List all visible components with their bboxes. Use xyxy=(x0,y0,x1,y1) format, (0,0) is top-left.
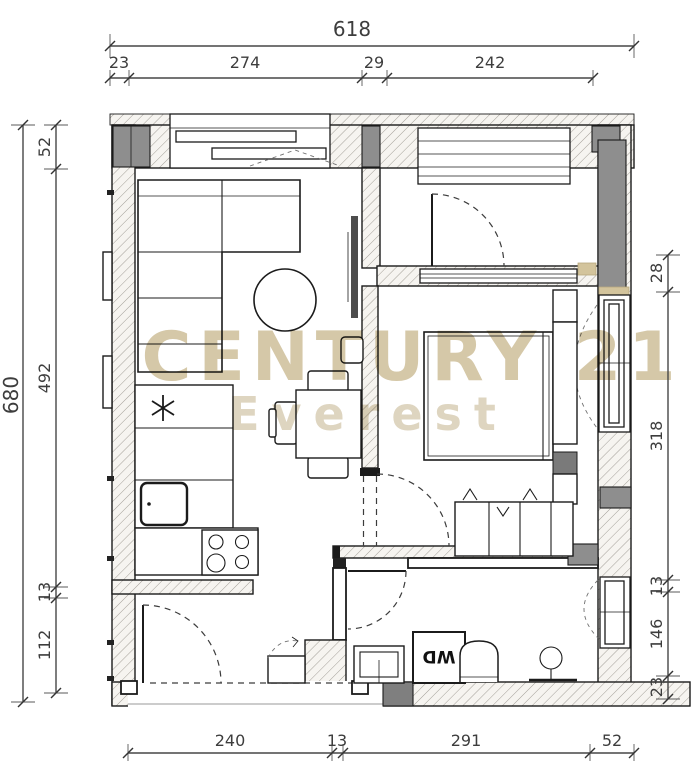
dim-right-seg-1: 318 xyxy=(647,421,666,452)
dim-right-seg-0: 28 xyxy=(647,263,666,283)
balcony-door xyxy=(432,194,504,266)
dim-top-seg-2: 29 xyxy=(364,53,384,72)
dim-bottom-seg-3: 52 xyxy=(602,731,622,750)
dim-bottom-segments-line: 240 13 291 52 xyxy=(123,731,639,761)
dim-left-seg-3: 112 xyxy=(35,630,54,661)
floor-plan-canvas: WD CENTURY xyxy=(0,0,695,768)
dim-top-segments-line: 23 274 29 242 xyxy=(105,53,598,86)
dim-top-seg-0: 23 xyxy=(109,53,129,72)
kitchen-sink xyxy=(141,483,187,525)
bedroom-door xyxy=(364,474,450,546)
dim-right-seg-3: 146 xyxy=(647,619,666,650)
dim-right-seg-2: 13 xyxy=(647,576,666,596)
dim-bottom-seg-1: 13 xyxy=(327,731,347,750)
washer-dryer: WD xyxy=(413,632,465,683)
dim-left-segments-line: 52 492 13 112 xyxy=(35,120,68,698)
toilet xyxy=(460,641,498,682)
dim-top-overall: 618 xyxy=(333,17,371,41)
washer-dryer-label: WD xyxy=(423,646,456,666)
dim-top-overall-line: 618 xyxy=(105,17,639,58)
balcony-window xyxy=(418,128,570,184)
bathroom-door xyxy=(348,571,406,629)
watermark-brand: CENTURY 21 xyxy=(141,318,682,397)
dim-left-seg-1: 492 xyxy=(35,363,54,394)
dim-bottom-seg-0: 240 xyxy=(215,731,246,750)
living-room-window xyxy=(170,114,340,168)
dim-bottom-seg-2: 291 xyxy=(451,731,482,750)
dim-right-seg-4: 23 xyxy=(647,677,666,697)
dim-left-overall: 680 xyxy=(0,376,23,414)
dim-left-seg-2: 13 xyxy=(35,582,54,602)
stove xyxy=(202,530,258,575)
hall-cabinet xyxy=(268,637,305,683)
bathroom-side-window xyxy=(584,577,630,648)
watermark-subbrand: Everest xyxy=(228,387,508,441)
dim-left-seg-0: 52 xyxy=(35,137,54,157)
dim-top-seg-3: 242 xyxy=(475,53,506,72)
entrance-opening xyxy=(121,681,413,707)
bathroom-sink xyxy=(354,646,404,683)
dim-top-seg-1: 274 xyxy=(230,53,261,72)
entrance-door xyxy=(143,605,221,683)
towel-radiator xyxy=(529,647,577,680)
balcony-door-glazing xyxy=(420,269,577,283)
dim-left-overall-line: 680 xyxy=(0,120,35,707)
